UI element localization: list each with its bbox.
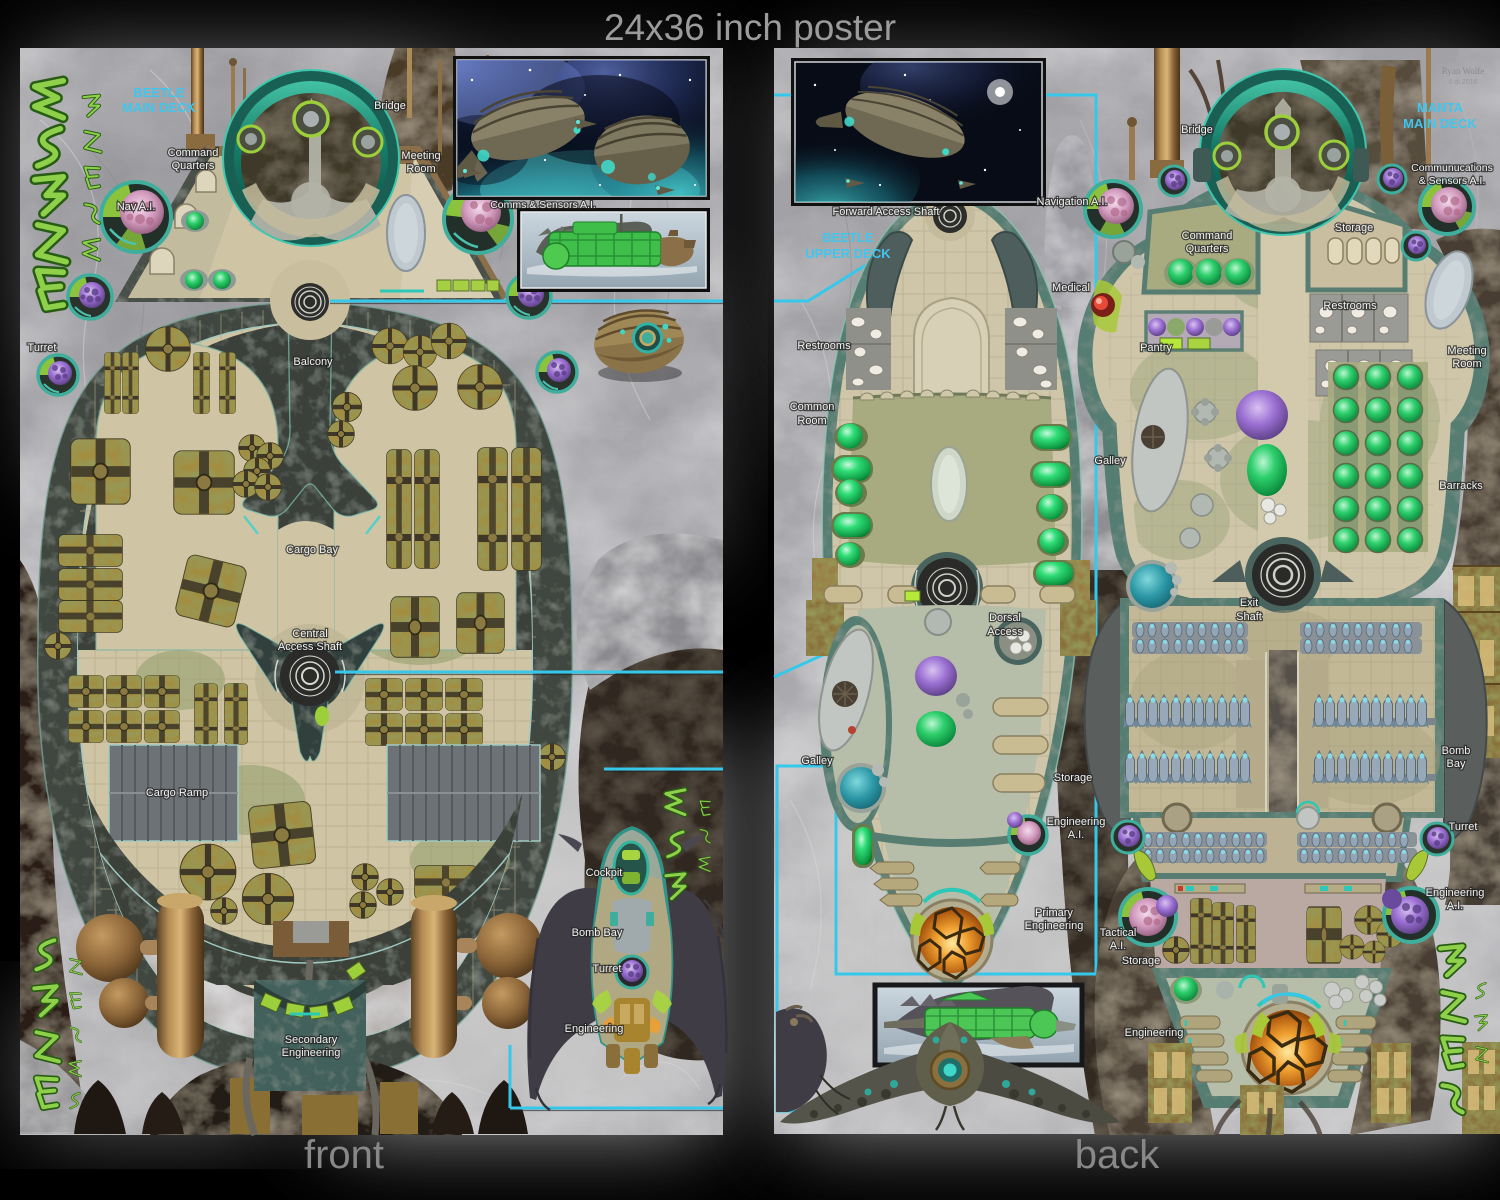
svg-text:Restrooms: Restrooms (1323, 300, 1377, 312)
svg-text:Quarters: Quarters (1186, 243, 1229, 255)
svg-text:Galley: Galley (801, 755, 833, 767)
svg-text:Nav A.I.: Nav A.I. (117, 201, 156, 213)
svg-text:Storage: Storage (1335, 222, 1374, 234)
svg-text:Command: Command (1182, 230, 1233, 242)
svg-text:front: front (304, 1133, 384, 1177)
svg-text:Barracks: Barracks (1439, 480, 1483, 492)
svg-text:Turret: Turret (28, 342, 57, 354)
svg-text:Medical: Medical (1052, 282, 1090, 294)
svg-text:Meeting: Meeting (401, 150, 440, 162)
svg-text:Engineering: Engineering (1047, 816, 1106, 828)
svg-text:Engineering: Engineering (565, 1023, 624, 1035)
svg-text:Bridge: Bridge (374, 100, 406, 112)
svg-text:Cargo Bay: Cargo Bay (286, 544, 338, 556)
svg-text:Navigation A.I.: Navigation A.I. (1037, 196, 1108, 208)
svg-text:Tactical: Tactical (1100, 927, 1137, 939)
svg-text:BEETLE: BEETLE (133, 85, 185, 100)
svg-text:Galley: Galley (1094, 455, 1126, 467)
svg-text:Access Shaft: Access Shaft (278, 641, 342, 653)
svg-text:Engineering: Engineering (1426, 887, 1485, 899)
svg-text:Storage: Storage (1054, 772, 1093, 784)
svg-text:Primary: Primary (1035, 907, 1073, 919)
svg-text:Room: Room (406, 163, 435, 175)
svg-text:Turret: Turret (593, 963, 622, 975)
svg-text:Command: Command (168, 147, 219, 159)
svg-text:MANTA: MANTA (1417, 100, 1464, 115)
svg-text:Bomb Bay: Bomb Bay (572, 927, 623, 939)
svg-text:Central: Central (292, 628, 327, 640)
svg-text:UPPER DECK: UPPER DECK (805, 246, 891, 261)
svg-text:& Sensors A.I.: & Sensors A.I. (1419, 175, 1486, 187)
svg-text:Turret: Turret (1449, 821, 1478, 833)
svg-text:Dorsal: Dorsal (989, 612, 1021, 624)
svg-text:Pantry: Pantry (1140, 342, 1172, 354)
svg-text:MAIN DECK: MAIN DECK (122, 100, 196, 115)
svg-text:Restrooms: Restrooms (797, 340, 851, 352)
svg-text:Shaft: Shaft (1236, 611, 1262, 623)
svg-text:A.I.: A.I. (1447, 900, 1464, 912)
svg-text:Room: Room (797, 415, 826, 427)
svg-text:Bridge: Bridge (1181, 124, 1213, 136)
svg-text:Storage: Storage (1122, 955, 1161, 967)
svg-text:Engineering: Engineering (1125, 1027, 1184, 1039)
svg-text:Bay: Bay (1447, 758, 1466, 770)
svg-text:MAIN DECK: MAIN DECK (1403, 116, 1477, 131)
svg-text:Access: Access (987, 626, 1023, 638)
svg-text:Common: Common (790, 401, 835, 413)
svg-text:Bomb: Bomb (1442, 745, 1471, 757)
svg-text:Engineering: Engineering (1025, 920, 1084, 932)
svg-text:Exit: Exit (1240, 597, 1258, 609)
svg-text:Quarters: Quarters (172, 160, 215, 172)
svg-text:0 di 2016: 0 di 2016 (1449, 79, 1478, 86)
svg-text:A.I.: A.I. (1110, 940, 1127, 952)
svg-text:Room: Room (1452, 358, 1481, 370)
svg-text:BEETLE: BEETLE (822, 230, 874, 245)
svg-text:Balcony: Balcony (293, 356, 333, 368)
svg-text:Engineering: Engineering (282, 1047, 341, 1059)
svg-text:Forward Access Shaft: Forward Access Shaft (833, 206, 940, 218)
svg-text:back: back (1075, 1133, 1160, 1177)
svg-text:Comms & Sensors A.I.: Comms & Sensors A.I. (490, 199, 596, 211)
svg-text:Communucations: Communucations (1411, 162, 1493, 174)
svg-text:A.I.: A.I. (1068, 829, 1085, 841)
svg-text:Cockpit: Cockpit (586, 867, 623, 879)
svg-text:Meeting: Meeting (1447, 345, 1486, 357)
svg-text:Secondary: Secondary (285, 1034, 338, 1046)
svg-text:Ryan Wolfe: Ryan Wolfe (1442, 66, 1485, 76)
svg-text:Cargo Ramp: Cargo Ramp (146, 787, 208, 799)
svg-text:24x36 inch poster: 24x36 inch poster (604, 7, 896, 48)
